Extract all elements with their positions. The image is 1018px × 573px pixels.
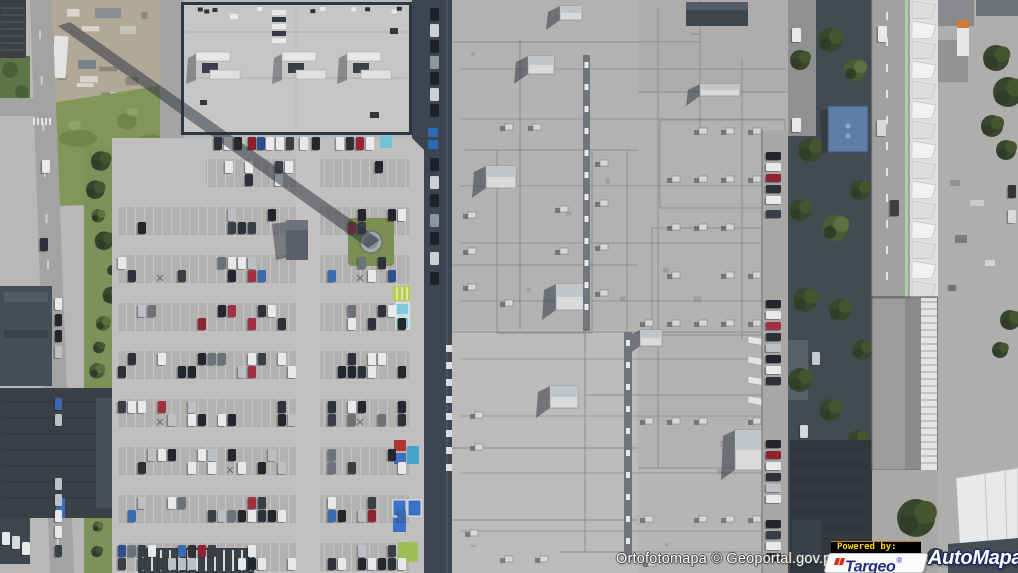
orthophoto-scene bbox=[0, 0, 1018, 573]
retail-store-roof bbox=[181, 2, 412, 135]
targeo-logo[interactable]: Targeo® bbox=[826, 553, 926, 573]
white-tent-row bbox=[910, 0, 940, 300]
targeo-registered-mark: ® bbox=[896, 556, 902, 565]
aerial-map-canvas[interactable]: Ortofotomapa © Geoportal.gov.pl Powered … bbox=[0, 0, 1018, 573]
mall-east-lane bbox=[762, 130, 790, 573]
targeo-logo-text: Targeo® bbox=[835, 553, 901, 573]
targeo-name: Targeo bbox=[845, 558, 895, 573]
mall-roof bbox=[452, 0, 790, 573]
automapa-logo[interactable]: AutoMapa® bbox=[928, 547, 1018, 570]
kiosk bbox=[272, 220, 308, 260]
east-road bbox=[872, 0, 912, 302]
automapa-name: AutoMapa bbox=[928, 547, 1018, 569]
map-attribution: Ortofotomapa © Geoportal.gov.pl bbox=[616, 551, 835, 567]
east-tree-strip bbox=[788, 0, 873, 573]
